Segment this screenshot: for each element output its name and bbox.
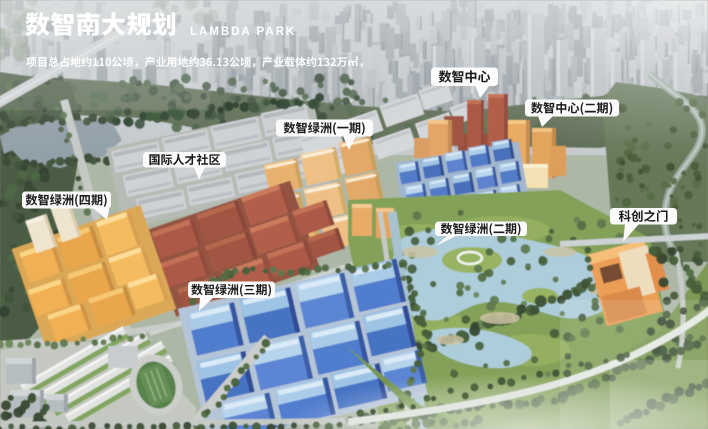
svg-text:LAMBDA PARK: LAMBDA PARK [190,26,296,38]
